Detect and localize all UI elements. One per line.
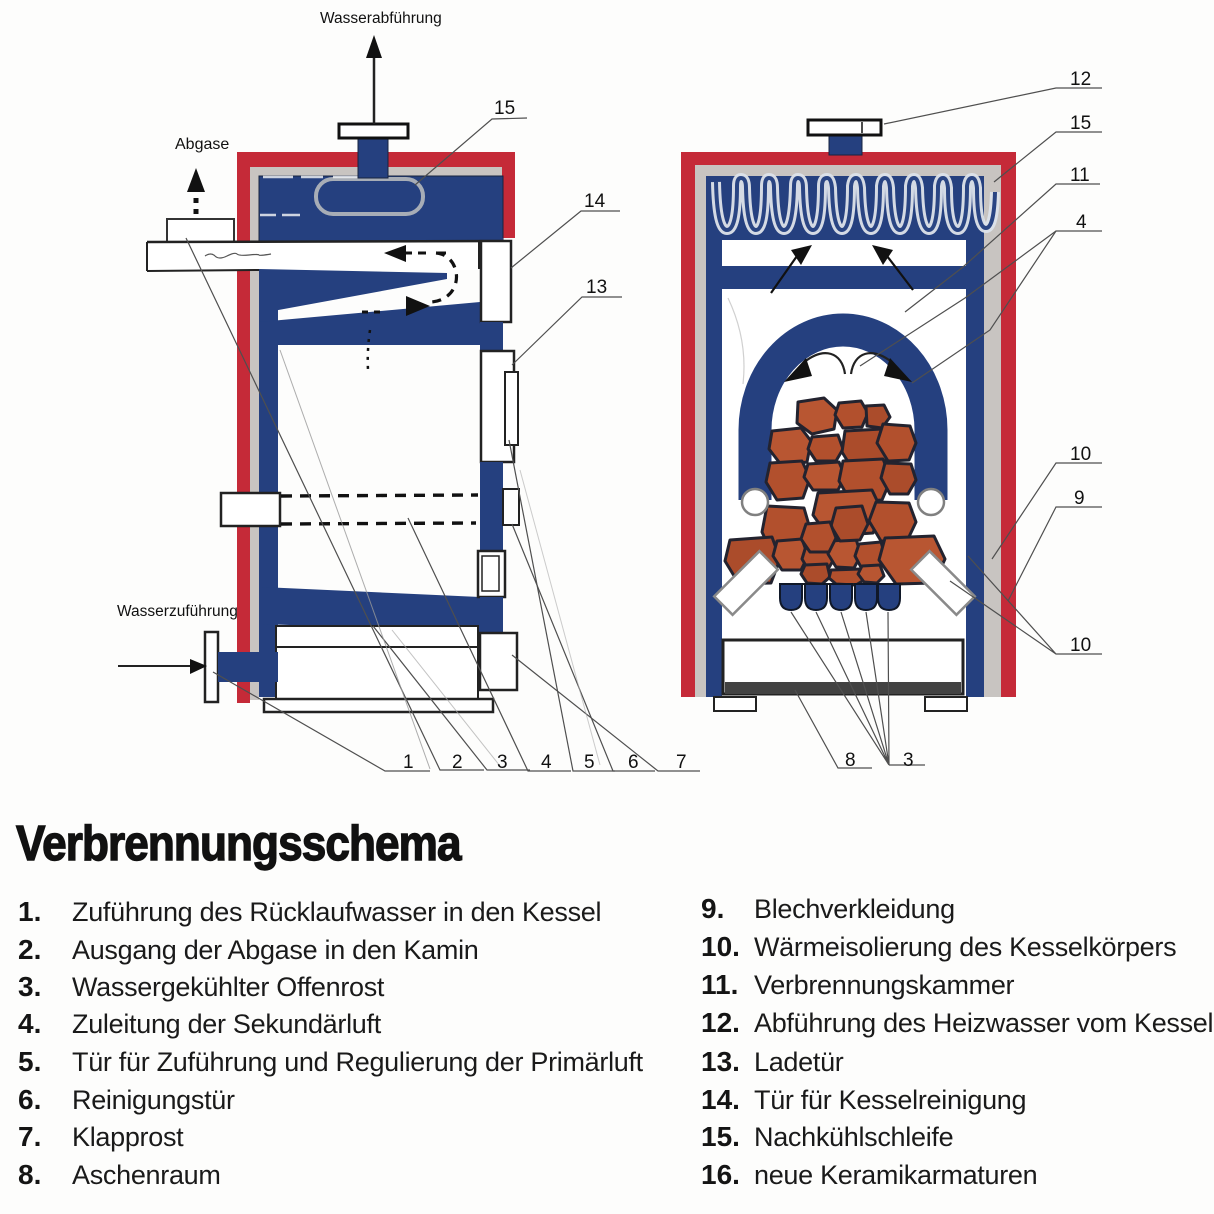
svg-text:3: 3 [903, 750, 914, 771]
svg-text:Wasserabführung: Wasserabführung [320, 10, 442, 27]
svg-text:15: 15 [1070, 113, 1091, 134]
svg-text:Wasserzuführung: Wasserzuführung [117, 603, 238, 620]
svg-text:10: 10 [1070, 635, 1091, 656]
svg-text:Abgase: Abgase [175, 136, 229, 153]
svg-text:6: 6 [628, 752, 639, 773]
svg-text:9: 9 [1074, 488, 1085, 509]
svg-text:4: 4 [541, 752, 552, 773]
svg-text:8: 8 [845, 750, 856, 771]
svg-text:7: 7 [676, 752, 687, 773]
svg-text:3: 3 [497, 752, 508, 773]
svg-text:13: 13 [586, 277, 607, 298]
svg-text:2: 2 [452, 752, 463, 773]
svg-text:1: 1 [403, 752, 414, 773]
svg-text:15: 15 [494, 98, 515, 119]
svg-text:5: 5 [584, 752, 595, 773]
svg-text:12: 12 [1070, 69, 1091, 90]
svg-text:10: 10 [1070, 444, 1091, 465]
svg-text:4: 4 [1076, 212, 1087, 233]
svg-text:14: 14 [584, 191, 606, 212]
svg-text:11: 11 [1070, 165, 1090, 186]
